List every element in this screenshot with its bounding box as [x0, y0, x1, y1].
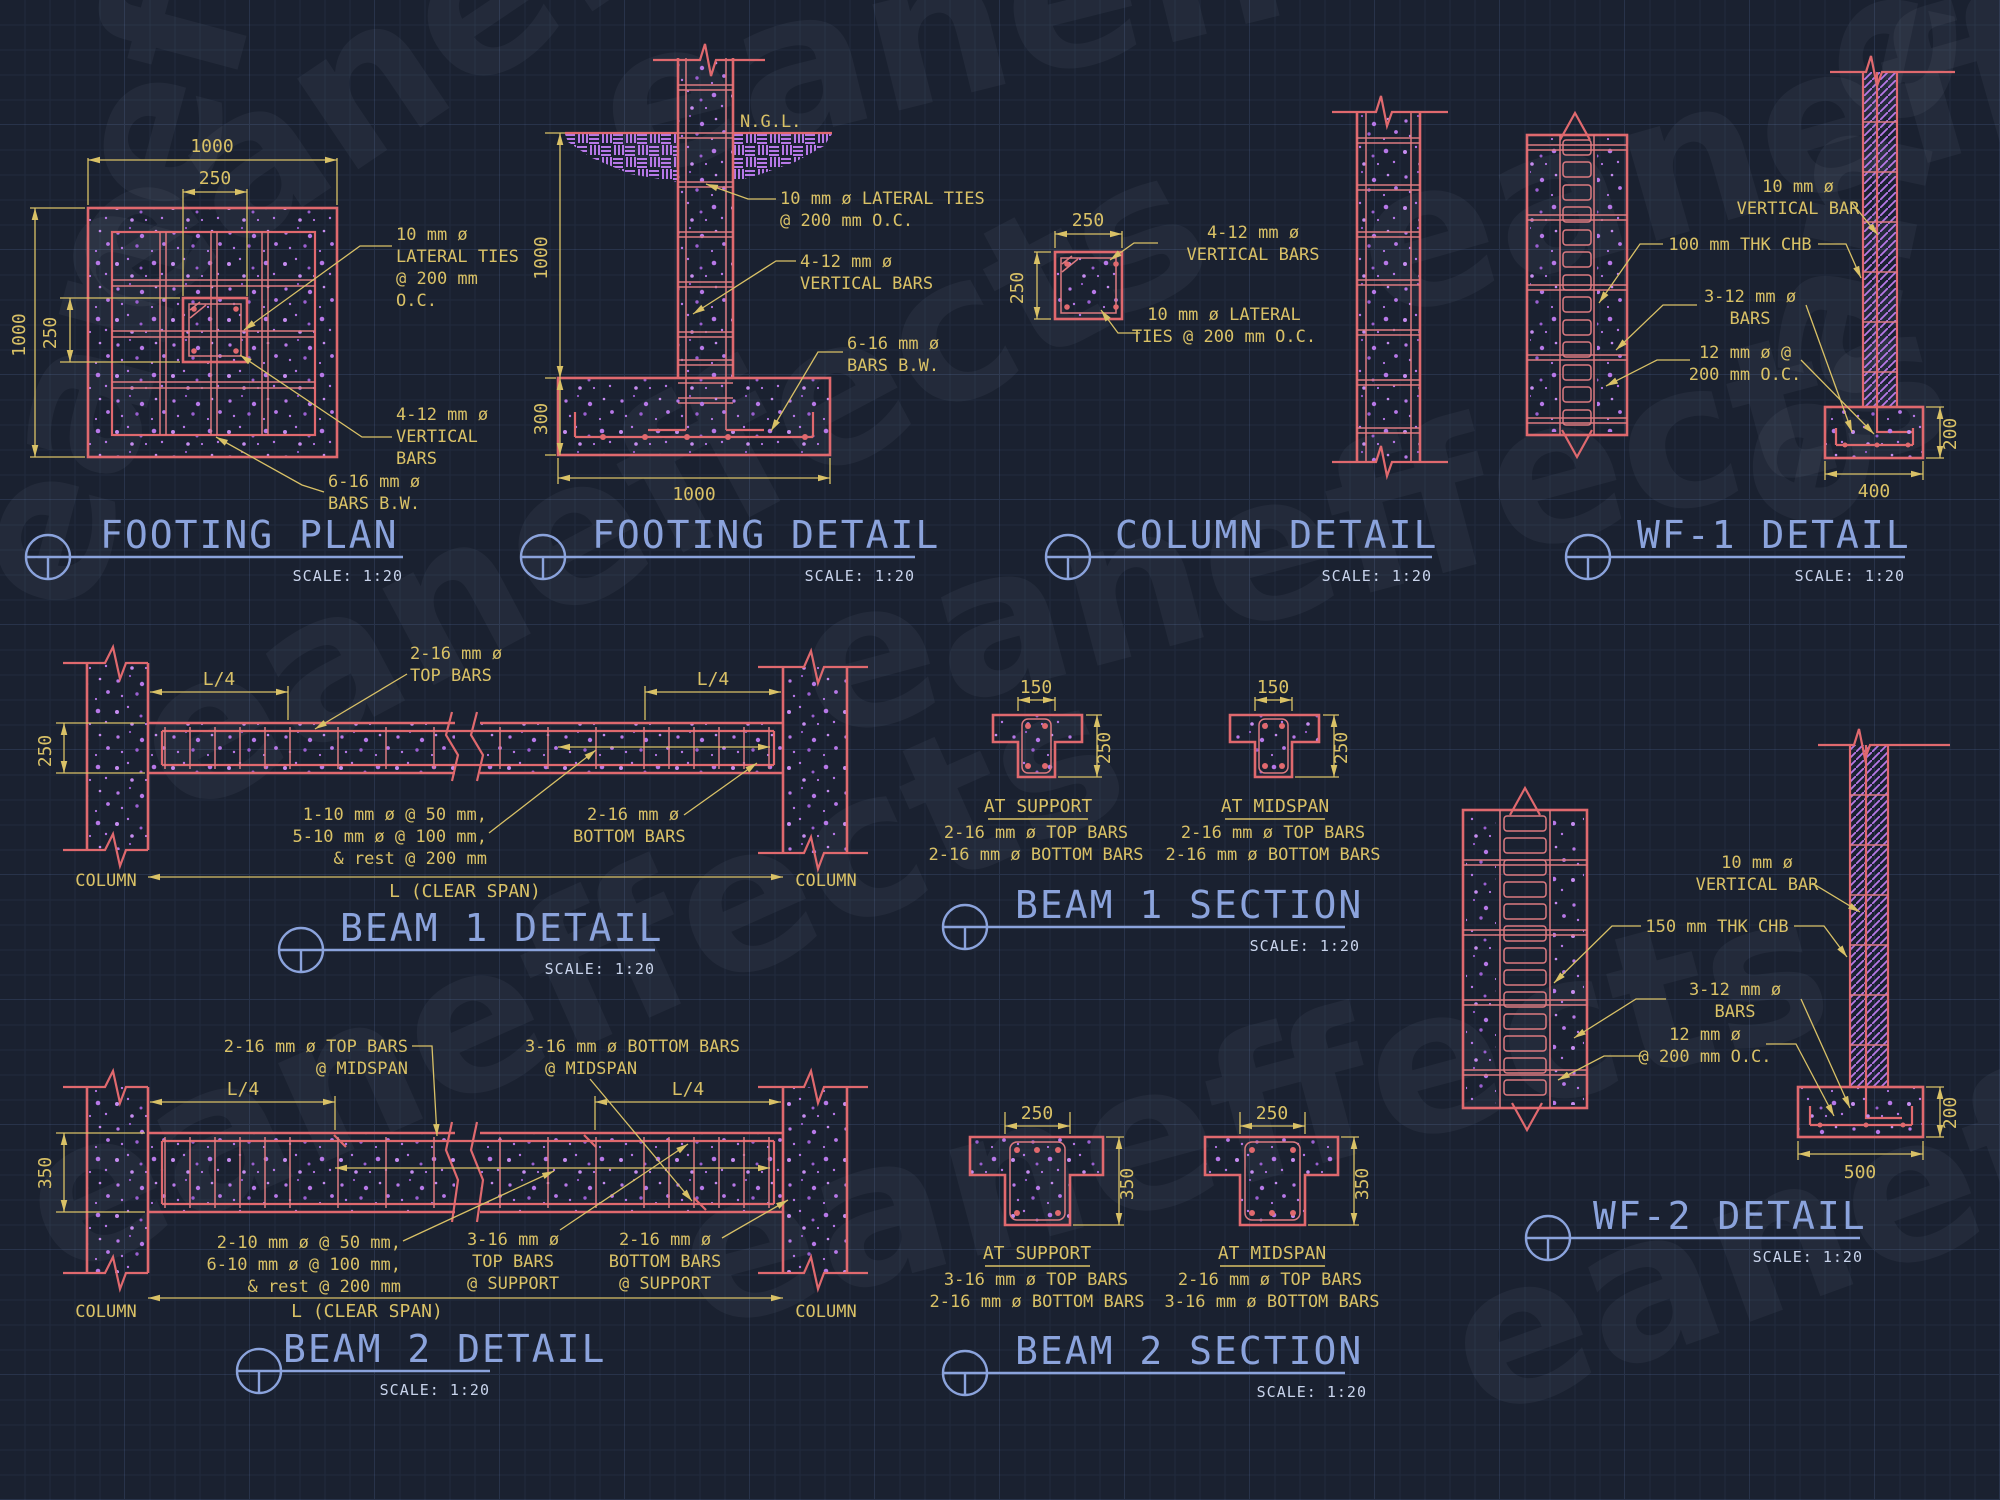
svg-text:@ 200 mm O.C.: @ 200 mm O.C.: [1638, 1047, 1771, 1067]
scale-label: SCALE: 1:20: [1322, 567, 1432, 585]
svg-text:BOTTOM BARS: BOTTOM BARS: [573, 827, 686, 847]
svg-text:10 mm ø LATERAL: 10 mm ø LATERAL: [1147, 305, 1301, 325]
svg-text:150: 150: [1020, 677, 1053, 698]
svg-text:VERTICAL BAR: VERTICAL BAR: [1696, 875, 1820, 895]
svg-text:1-10 mm ø @ 50 mm,: 1-10 mm ø @ 50 mm,: [303, 805, 487, 825]
svg-text:@ MIDSPAN: @ MIDSPAN: [545, 1059, 637, 1079]
dim-250-left: 250: [40, 317, 61, 350]
column-label: COLUMN: [795, 871, 856, 891]
svg-text:L (CLEAR SPAN): L (CLEAR SPAN): [291, 1301, 443, 1322]
svg-text:VERTICAL BARS: VERTICAL BARS: [1186, 245, 1319, 265]
svg-text:BARS B.W.: BARS B.W.: [847, 356, 939, 376]
svg-text:2-10 mm ø @ 50 mm,: 2-10 mm ø @ 50 mm,: [217, 1233, 401, 1253]
column-label: COLUMN: [75, 871, 136, 891]
svg-text:@ MIDSPAN: @ MIDSPAN: [316, 1059, 408, 1079]
drawing-canvas: eaneffects eaneffects eaneffects eaneffe…: [0, 0, 2000, 1500]
svg-text:6-10 mm ø @ 100 mm,: 6-10 mm ø @ 100 mm,: [207, 1255, 401, 1275]
scale-label: SCALE: 1:20: [1257, 1383, 1367, 1401]
svg-text:250: 250: [35, 735, 56, 768]
svg-text:3-16 mm ø TOP BARS: 3-16 mm ø TOP BARS: [944, 1270, 1128, 1290]
svg-text:300: 300: [531, 403, 552, 436]
svg-text:2-16 mm ø TOP BARS: 2-16 mm ø TOP BARS: [944, 823, 1128, 843]
svg-text:BOTTOM BARS: BOTTOM BARS: [609, 1252, 722, 1272]
svg-text:LATERAL TIES: LATERAL TIES: [396, 247, 519, 267]
svg-text:TIES @ 200 mm O.C.: TIES @ 200 mm O.C.: [1132, 327, 1316, 347]
panel-title: WF-2 DETAIL: [1593, 1194, 1867, 1238]
svg-text:BARS B.W.: BARS B.W.: [328, 494, 420, 514]
svg-text:TOP BARS: TOP BARS: [472, 1252, 554, 1272]
svg-text:2-16 mm ø TOP BARS: 2-16 mm ø TOP BARS: [1181, 823, 1365, 843]
svg-text:500: 500: [1844, 1162, 1877, 1183]
svg-text:100 mm THK CHB: 100 mm THK CHB: [1668, 235, 1811, 255]
svg-text:10 mm ø: 10 mm ø: [396, 225, 468, 245]
dim-1000-top: 1000: [190, 136, 233, 157]
scale-label: SCALE: 1:20: [1795, 567, 1905, 585]
svg-text:AT SUPPORT: AT SUPPORT: [984, 796, 1093, 817]
svg-text:12 mm ø: 12 mm ø: [1669, 1025, 1741, 1045]
svg-text:10 mm ø: 10 mm ø: [1721, 853, 1793, 873]
svg-text:250: 250: [1256, 1103, 1289, 1124]
dim-250-top: 250: [199, 168, 232, 189]
panel-title: COLUMN DETAIL: [1115, 513, 1438, 557]
svg-text:350: 350: [1117, 1168, 1138, 1201]
svg-text:AT MIDSPAN: AT MIDSPAN: [1218, 1243, 1326, 1264]
svg-text:3-12 mm ø: 3-12 mm ø: [1689, 980, 1781, 1000]
svg-text:2-16 mm ø TOP BARS: 2-16 mm ø TOP BARS: [224, 1037, 408, 1057]
svg-text:2-16 mm ø TOP BARS: 2-16 mm ø TOP BARS: [1178, 1270, 1362, 1290]
svg-text:6-16 mm ø: 6-16 mm ø: [328, 472, 420, 492]
svg-text:L/4: L/4: [697, 669, 730, 690]
svg-text:200: 200: [1940, 418, 1961, 451]
svg-text:150: 150: [1257, 677, 1290, 698]
panel-title: WF-1 DETAIL: [1637, 513, 1911, 557]
svg-text:12 mm ø @: 12 mm ø @: [1699, 343, 1791, 363]
panel-title: FOOTING DETAIL: [592, 513, 940, 557]
svg-text:L/4: L/4: [203, 669, 236, 690]
svg-text:@ 200 mm O.C.: @ 200 mm O.C.: [780, 211, 913, 231]
svg-text:1000: 1000: [672, 484, 715, 505]
svg-text:250: 250: [1072, 210, 1105, 231]
scale-label: SCALE: 1:20: [1753, 1248, 1863, 1266]
svg-text:@ 200 mm: @ 200 mm: [396, 269, 478, 289]
svg-text:1000: 1000: [531, 236, 552, 279]
svg-text:L (CLEAR SPAN): L (CLEAR SPAN): [389, 881, 541, 902]
svg-text:3-12 mm ø: 3-12 mm ø: [1704, 287, 1796, 307]
panel-title: BEAM 1 DETAIL: [340, 906, 663, 950]
scale-label: SCALE: 1:20: [1250, 937, 1360, 955]
svg-text:250: 250: [1021, 1103, 1054, 1124]
svg-text:4-12 mm ø: 4-12 mm ø: [396, 405, 488, 425]
svg-text:@ SUPPORT: @ SUPPORT: [467, 1274, 559, 1294]
svg-text:& rest @ 200 mm: & rest @ 200 mm: [333, 849, 487, 869]
scale-label: SCALE: 1:20: [380, 1381, 490, 1399]
svg-text:3-16 mm ø BOTTOM BARS: 3-16 mm ø BOTTOM BARS: [1165, 1292, 1380, 1312]
svg-text:AT MIDSPAN: AT MIDSPAN: [1221, 796, 1329, 817]
svg-text:& rest @ 200 mm: & rest @ 200 mm: [247, 1277, 401, 1297]
svg-text:150 mm THK CHB: 150 mm THK CHB: [1645, 917, 1788, 937]
scale-label: SCALE: 1:20: [805, 567, 915, 585]
svg-text:250: 250: [1331, 732, 1352, 765]
svg-text:L/4: L/4: [227, 1079, 260, 1100]
svg-text:250: 250: [1094, 732, 1115, 765]
svg-text:6-16 mm ø: 6-16 mm ø: [847, 334, 939, 354]
svg-text:5-10 mm ø @ 100 mm,: 5-10 mm ø @ 100 mm,: [293, 827, 487, 847]
svg-text:400: 400: [1858, 481, 1891, 502]
svg-text:BARS: BARS: [396, 449, 437, 469]
dim-1000-left: 1000: [9, 313, 30, 356]
svg-text:10 mm ø LATERAL TIES: 10 mm ø LATERAL TIES: [780, 189, 985, 209]
svg-text:2-16 mm ø BOTTOM BARS: 2-16 mm ø BOTTOM BARS: [929, 845, 1144, 865]
svg-text:3-16 mm ø BOTTOM BARS: 3-16 mm ø BOTTOM BARS: [525, 1037, 740, 1057]
svg-text:2-16 mm ø BOTTOM BARS: 2-16 mm ø BOTTOM BARS: [1166, 845, 1381, 865]
scale-label: SCALE: 1:20: [545, 960, 655, 978]
svg-text:VERTICAL BARS: VERTICAL BARS: [800, 274, 933, 294]
svg-text:BARS: BARS: [1715, 1002, 1756, 1022]
svg-text:VERTICAL BAR: VERTICAL BAR: [1737, 199, 1861, 219]
svg-text:O.C.: O.C.: [396, 291, 437, 311]
svg-text:L/4: L/4: [672, 1079, 705, 1100]
svg-text:10 mm ø: 10 mm ø: [1762, 177, 1834, 197]
svg-text:200: 200: [1940, 1097, 1961, 1130]
svg-text:350: 350: [1352, 1168, 1373, 1201]
svg-text:2-16 mm ø: 2-16 mm ø: [619, 1230, 711, 1250]
scale-label: SCALE: 1:20: [293, 567, 403, 585]
svg-text:2-16 mm ø: 2-16 mm ø: [410, 644, 502, 664]
svg-text:4-12 mm ø: 4-12 mm ø: [1207, 223, 1299, 243]
svg-text:250: 250: [1007, 272, 1028, 305]
svg-text:AT SUPPORT: AT SUPPORT: [983, 1243, 1092, 1264]
svg-text:200 mm O.C.: 200 mm O.C.: [1689, 365, 1802, 385]
svg-text:BARS: BARS: [1730, 309, 1771, 329]
svg-text:2-16 mm ø: 2-16 mm ø: [587, 805, 679, 825]
column-label: COLUMN: [795, 1302, 856, 1322]
ngl-label: N.G.L.: [740, 112, 801, 132]
svg-text:3-16 mm ø: 3-16 mm ø: [467, 1230, 559, 1250]
svg-text:4-12 mm ø: 4-12 mm ø: [800, 252, 892, 272]
svg-text:350: 350: [35, 1157, 56, 1190]
svg-text:VERTICAL: VERTICAL: [396, 427, 478, 447]
svg-text:TOP BARS: TOP BARS: [410, 666, 492, 686]
panel-title: BEAM 2 DETAIL: [283, 1327, 606, 1371]
column-label: COLUMN: [75, 1302, 136, 1322]
panel-title: BEAM 1 SECTION: [1015, 883, 1363, 927]
cad-drawing-sheet: eaneffects eaneffects eaneffects eaneffe…: [0, 0, 2000, 1500]
svg-text:@ SUPPORT: @ SUPPORT: [619, 1274, 711, 1294]
panel-title: BEAM 2 SECTION: [1015, 1329, 1363, 1373]
svg-text:2-16 mm ø BOTTOM BARS: 2-16 mm ø BOTTOM BARS: [930, 1292, 1145, 1312]
panel-title: FOOTING PLAN: [100, 513, 399, 557]
